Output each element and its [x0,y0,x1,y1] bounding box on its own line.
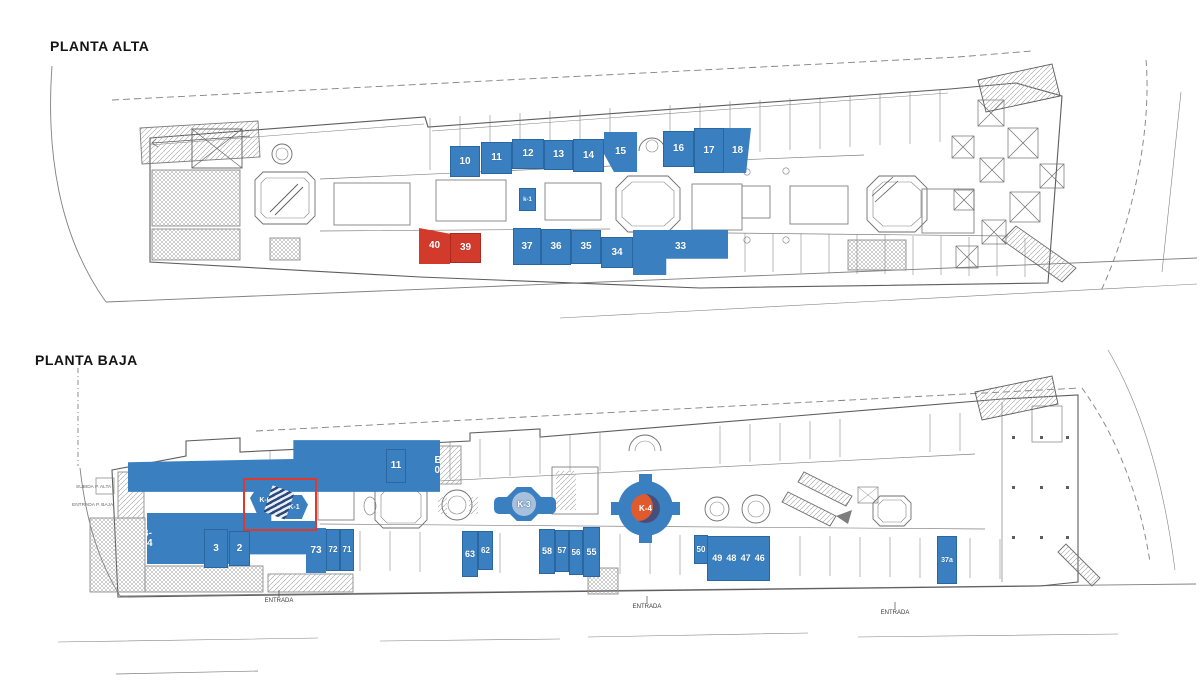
unit-label: 47 [741,554,751,563]
k4-tab-west [611,502,620,515]
unit-2[interactable]: 2 [229,531,250,566]
unit-55[interactable]: 55 [583,527,600,577]
k4-circle: K-4 [631,494,660,523]
unit-label: 55 [586,548,596,557]
k4-label: K-4 [639,504,652,513]
side-label: ENTRADA P. BAJA [72,503,113,508]
unit-3[interactable]: 3 [204,529,228,568]
unit-label: 11 [391,461,402,471]
k4-tab-south [639,534,652,543]
unit-label: 37a [941,557,953,564]
unit-58[interactable]: 58 [539,529,555,574]
entrance-label: ENTRADA [265,598,294,604]
unit-label: 2 [237,544,243,554]
unit-49-48-47-46[interactable]: 49484746 [707,536,770,581]
unit-label: 73 [310,546,321,556]
entrance-label: ENTRADA [881,610,910,616]
planta-baja-units-layer: B-05B-04K-0K-132117372716362585756555049… [0,0,1200,680]
unit-label: 3 [213,544,219,554]
unit-label: 48 [726,554,736,563]
kiosk-k3[interactable]: K-3 [494,487,556,521]
unit-57[interactable]: 57 [555,530,569,572]
unit-72[interactable]: 72 [326,529,340,571]
k4-tab-east [672,502,680,515]
unit-label: 72 [329,546,338,554]
unit-label: B-05 [434,456,445,476]
kiosk-k4[interactable]: K-4 [611,474,680,543]
unit-label: 63 [465,550,475,559]
unit-63[interactable]: 63 [462,531,478,577]
k3-circle: K-3 [512,492,536,516]
unit-label: 56 [572,549,581,557]
unit-37a[interactable]: 37a [937,536,957,584]
mall-floorplan-canvas: PLANTA ALTA PLANTA BAJA 1011121314151617… [0,0,1200,680]
unit-label: B-04 [141,529,152,549]
unit-label: 46 [755,554,765,563]
unit-label: 58 [542,547,552,556]
unit-label: 57 [558,547,567,555]
unit-label: 62 [481,547,490,555]
unit-56[interactable]: 56 [569,530,583,575]
unit-50[interactable]: 50 [694,535,708,564]
entrance-label: ENTRADA [633,604,662,610]
unit-73[interactable]: 73 [306,528,326,573]
unit-label: 71 [343,546,352,554]
floor-title-planta-baja: PLANTA BAJA [35,352,138,368]
side-label: SUBIDA P. ALTA [76,485,111,490]
k4-tab-north [639,474,652,484]
unit-label: 49 [712,554,722,563]
unit-11[interactable]: 11 [386,449,406,483]
unit-label: 50 [697,546,706,554]
floor-title-planta-alta: PLANTA ALTA [50,38,149,54]
k3-label: K-3 [518,500,531,509]
unit-62[interactable]: 62 [478,531,493,570]
unit-71[interactable]: 71 [340,529,354,571]
